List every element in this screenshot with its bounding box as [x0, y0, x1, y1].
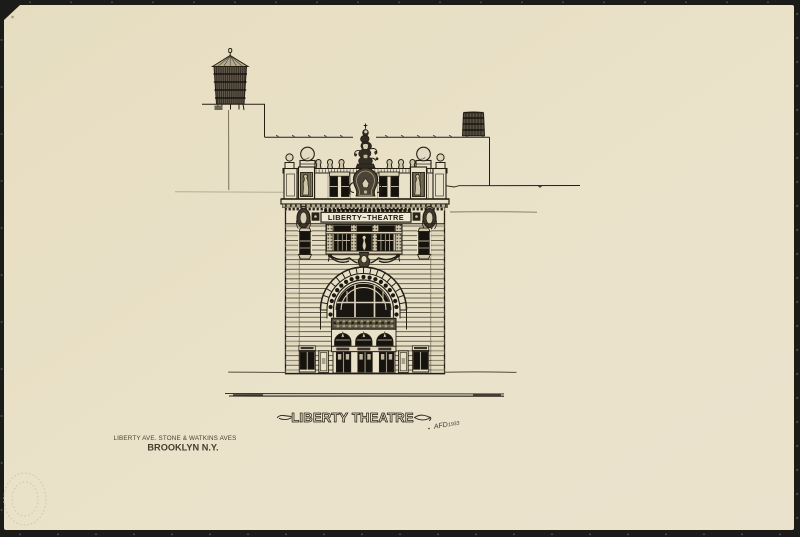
svg-text:LIBERTY AVE. STONE & WATKINS: LIBERTY AVE. STONE & WATKINS AVES [114, 435, 237, 442]
svg-text:LIBERTY THEATRE: LIBERTY THEATRE [291, 410, 414, 425]
svg-text:BROOKLYN N.Y.: BROOKLYN N.Y. [147, 443, 218, 453]
svg-text:LIBERTY~THEATRE: LIBERTY~THEATRE [328, 213, 404, 222]
